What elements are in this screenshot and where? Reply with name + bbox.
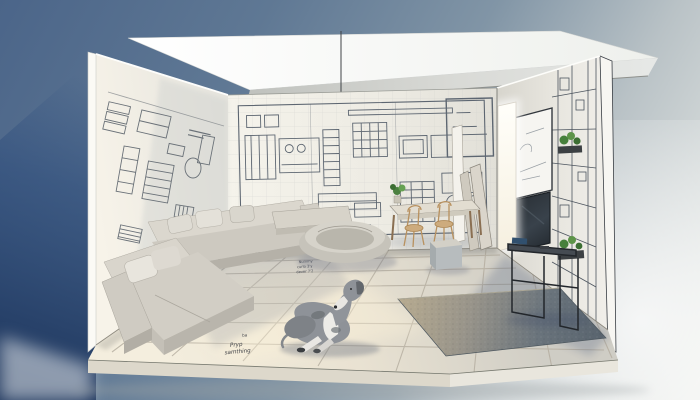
dog-paw-2 <box>313 349 321 353</box>
dog-nose <box>334 305 337 308</box>
plinth-reflection <box>70 381 650 399</box>
dog-eye <box>350 288 352 290</box>
console-remote <box>540 246 549 249</box>
render-image: ba Pryp samthing Nummy curlo 3'y dever 7… <box>0 0 700 400</box>
floor-note-a-line1: Pryp <box>230 342 243 349</box>
scene-canvas: ba Pryp samthing Nummy curlo 3'y dever 7… <box>0 0 700 400</box>
left-wall-cut-edge <box>88 52 96 352</box>
console-books <box>512 238 527 245</box>
doorway <box>498 102 516 251</box>
dog-patch-2 <box>331 327 341 333</box>
dog-paw-1 <box>297 348 305 353</box>
